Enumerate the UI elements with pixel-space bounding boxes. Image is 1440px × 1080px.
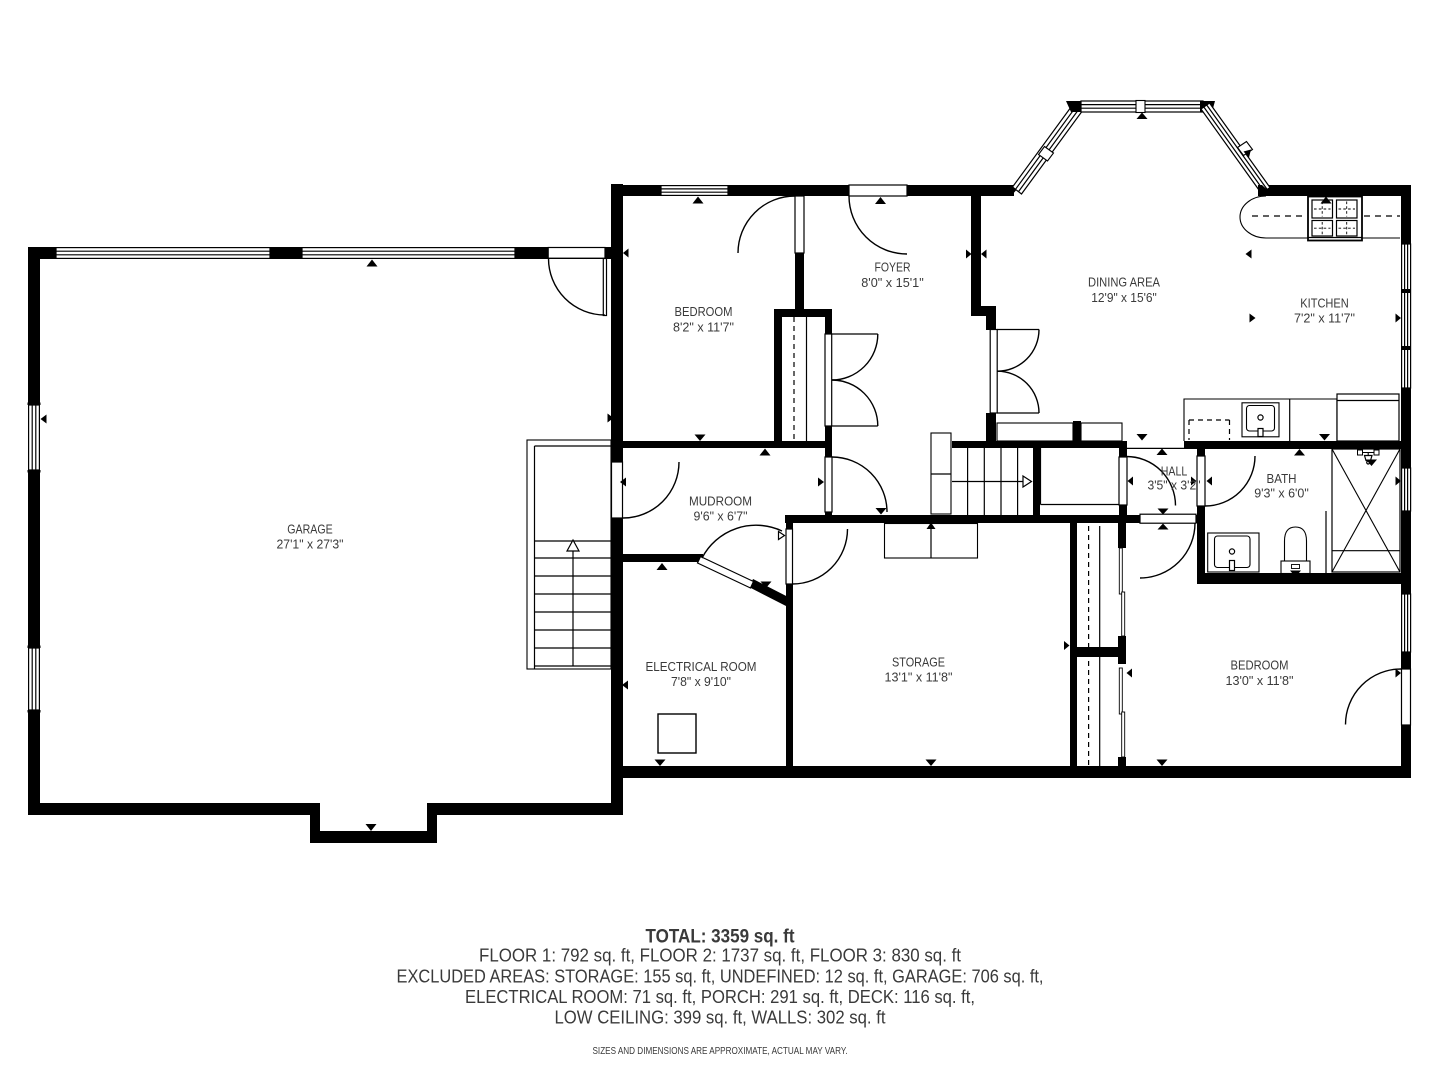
svg-text:ELECTRICAL ROOM: ELECTRICAL ROOM bbox=[646, 659, 757, 674]
svg-text:HALL: HALL bbox=[1161, 464, 1188, 479]
svg-text:STORAGE: STORAGE bbox=[892, 655, 945, 670]
svg-text:12'9" x 15'6": 12'9" x 15'6" bbox=[1091, 290, 1157, 305]
svg-text:9'6" x 6'7": 9'6" x 6'7" bbox=[694, 509, 748, 524]
svg-text:8'0" x 15'1": 8'0" x 15'1" bbox=[861, 275, 924, 290]
svg-text:27'1" x 27'3": 27'1" x 27'3" bbox=[277, 537, 344, 552]
svg-text:13'0" x 11'8": 13'0" x 11'8" bbox=[1226, 673, 1294, 688]
svg-text:8'2" x 11'7": 8'2" x 11'7" bbox=[673, 320, 734, 335]
svg-text:BEDROOM: BEDROOM bbox=[675, 304, 733, 319]
svg-text:TOTAL: 3359 sq. ft: TOTAL: 3359 sq. ft bbox=[646, 927, 796, 948]
svg-text:BATH: BATH bbox=[1267, 471, 1297, 486]
svg-text:ELECTRICAL ROOM: 71 sq. ft, PO: ELECTRICAL ROOM: 71 sq. ft, PORCH: 291 s… bbox=[465, 987, 975, 1007]
svg-text:9'3" x 6'0": 9'3" x 6'0" bbox=[1254, 486, 1309, 501]
svg-text:BEDROOM: BEDROOM bbox=[1231, 658, 1289, 673]
svg-text:3'5" x 3'2": 3'5" x 3'2" bbox=[1148, 478, 1201, 493]
svg-text:SIZES AND DIMENSIONS ARE APPRO: SIZES AND DIMENSIONS ARE APPROXIMATE, AC… bbox=[593, 1046, 848, 1057]
svg-text:KITCHEN: KITCHEN bbox=[1300, 296, 1349, 311]
svg-text:13'1" x 11'8": 13'1" x 11'8" bbox=[885, 670, 953, 685]
svg-text:GARAGE: GARAGE bbox=[287, 522, 333, 537]
svg-text:EXCLUDED AREAS: STORAGE: 155 s: EXCLUDED AREAS: STORAGE: 155 sq. ft, UND… bbox=[397, 967, 1044, 987]
svg-text:MUDROOM: MUDROOM bbox=[689, 494, 752, 509]
svg-text:7'2" x 11'7": 7'2" x 11'7" bbox=[1294, 311, 1355, 326]
svg-text:7'8" x 9'10": 7'8" x 9'10" bbox=[671, 674, 731, 689]
svg-text:DINING AREA: DINING AREA bbox=[1088, 275, 1160, 290]
svg-text:LOW CEILING: 399 sq. ft, WALLS: LOW CEILING: 399 sq. ft, WALLS: 302 sq. … bbox=[555, 1008, 886, 1028]
svg-text:FOYER: FOYER bbox=[875, 260, 911, 275]
svg-text:FLOOR 1: 792 sq. ft, FLOOR 2:: FLOOR 1: 792 sq. ft, FLOOR 2: 1737 sq. f… bbox=[479, 946, 961, 966]
